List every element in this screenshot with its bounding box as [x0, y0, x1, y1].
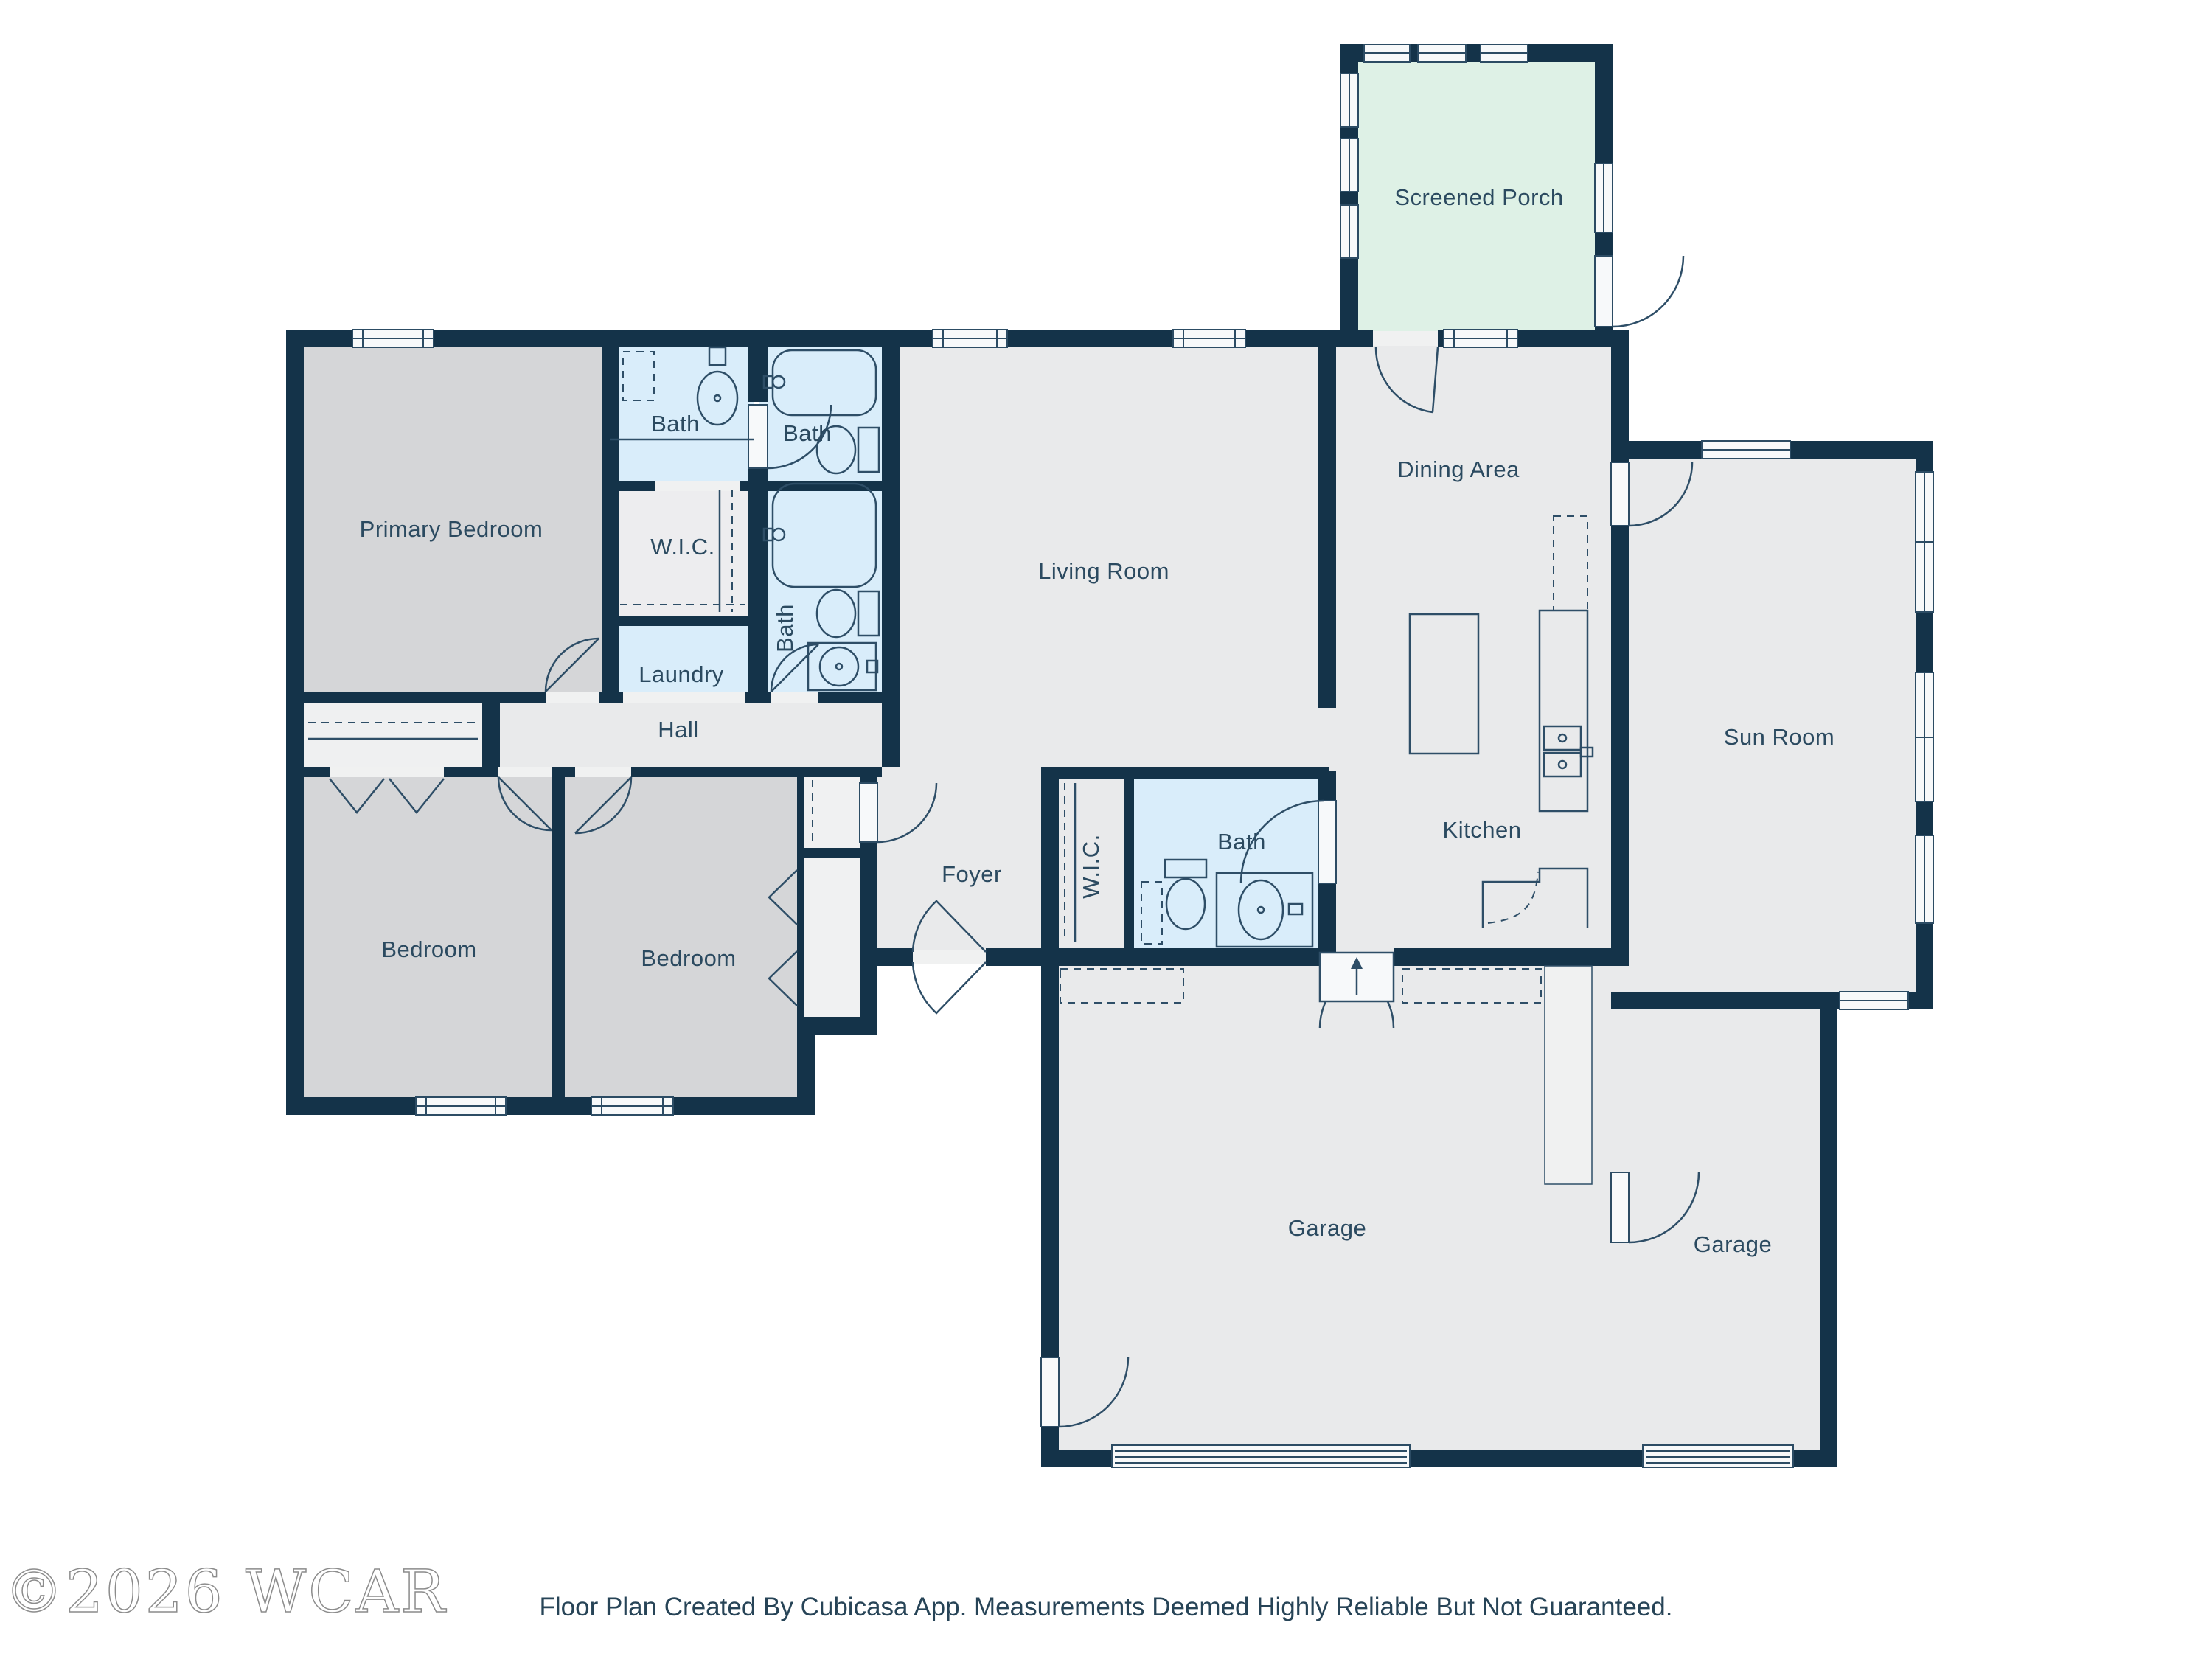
garage-door-1 — [1112, 1445, 1410, 1467]
room-label-bath-1: Bath — [651, 411, 700, 437]
room-label-dining-area: Dining Area — [1397, 456, 1520, 482]
window-porch-right — [1595, 164, 1613, 232]
room-label-screened-porch: Screened Porch — [1394, 184, 1563, 210]
room-label-sun-room: Sun Room — [1724, 724, 1834, 750]
room-label-hall: Hall — [658, 717, 698, 742]
room-floor-bedroom-2 — [556, 771, 804, 1106]
floor-plan: Screened Porch Primary Bedroom Bath Bath… — [0, 0, 2212, 1659]
room-label-bath-4: Bath — [1217, 829, 1266, 855]
room-floor-garage-2 — [1620, 1001, 1829, 1458]
closet-floor-linen — [799, 771, 869, 854]
room-label-wic-1: W.I.C. — [650, 534, 714, 560]
room-label-bedroom-2: Bedroom — [641, 945, 736, 971]
room-label-garage-2: Garage — [1694, 1231, 1772, 1257]
room-label-wic-2: W.I.C. — [1078, 834, 1104, 898]
window-living-1 — [933, 330, 1007, 347]
closet-floor-bedroom2 — [799, 854, 869, 1023]
window-porch-left — [1340, 74, 1358, 258]
room-floors — [295, 53, 1924, 1458]
room-floor-dining-kitchen — [1327, 338, 1620, 956]
window-living-2 — [1173, 330, 1245, 347]
window-dining — [1444, 330, 1517, 347]
closet-floor-bedroom1 — [298, 698, 491, 773]
room-label-garage-1: Garage — [1288, 1215, 1366, 1241]
room-label-living-room: Living Room — [1038, 558, 1169, 584]
window-sunroom-right — [1916, 472, 1933, 923]
room-label-bath-3: Bath — [772, 604, 798, 653]
room-floor-garage-1 — [1050, 956, 1620, 1458]
window-bedroom-1 — [416, 1097, 506, 1115]
room-floor-foyer — [869, 767, 1060, 953]
door-porch-exterior — [1595, 256, 1683, 327]
room-label-bath-2: Bath — [783, 420, 832, 446]
room-label-foyer: Foyer — [942, 861, 1002, 887]
window-sunroom-top — [1702, 441, 1790, 459]
room-label-bedroom-1: Bedroom — [381, 936, 476, 962]
garage-door-2 — [1643, 1445, 1793, 1467]
window-primary-bedroom — [352, 330, 434, 347]
room-label-kitchen: Kitchen — [1443, 817, 1522, 843]
caption: Floor Plan Created By Cubicasa App. Meas… — [0, 1593, 2212, 1622]
window-sunroom-bottom — [1840, 992, 1908, 1009]
room-label-primary-bedroom: Primary Bedroom — [360, 516, 543, 542]
room-label-laundry: Laundry — [639, 661, 724, 687]
room-floor-bath-4 — [1133, 773, 1324, 950]
window-bedroom-2 — [591, 1097, 673, 1115]
window-porch-top — [1364, 44, 1528, 62]
